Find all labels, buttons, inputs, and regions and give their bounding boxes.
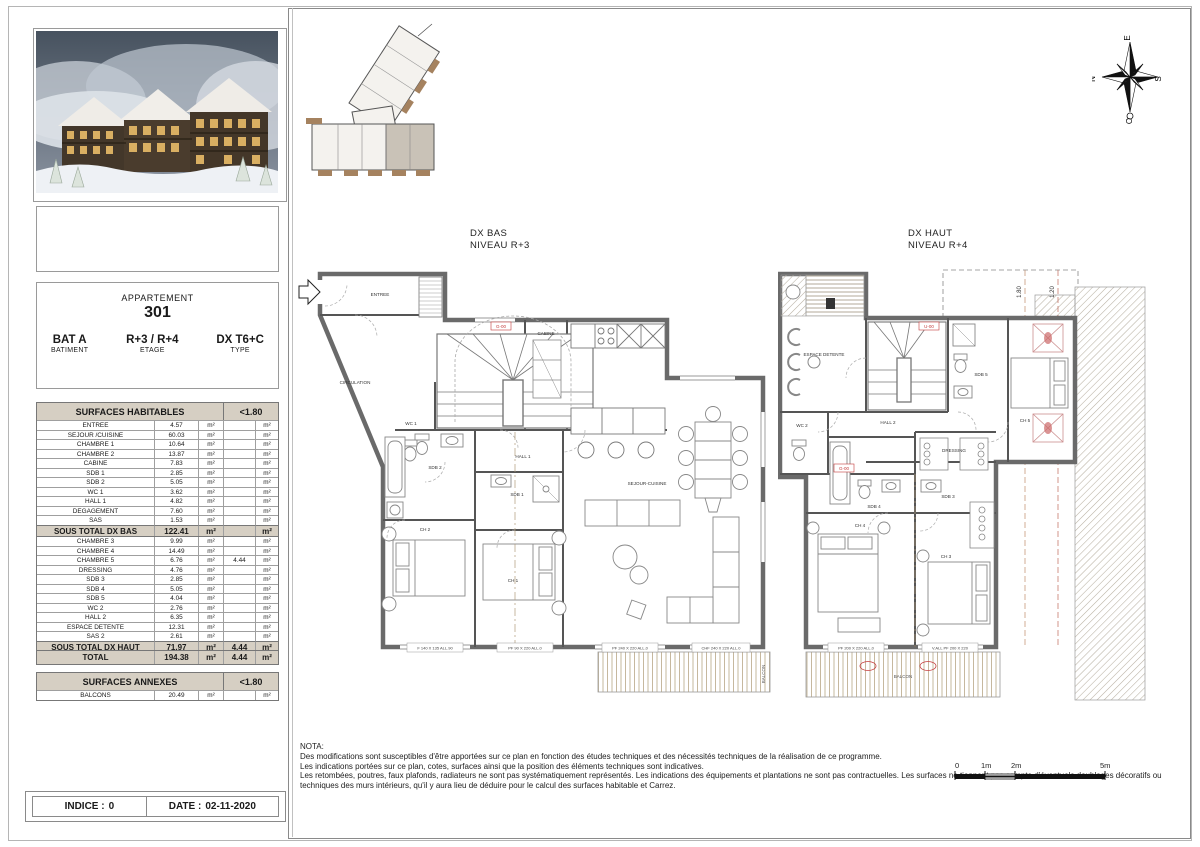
surfaces-annexes-table: SURFACES ANNEXES <1.80 BALCONS20.49m²m² <box>36 672 279 701</box>
table-cell: m² <box>198 487 223 497</box>
sdb3-fixtures <box>921 480 941 492</box>
door-tag-label: G-00 <box>839 466 850 471</box>
table-cell: 3.62 <box>154 487 198 497</box>
table-row: DRESSING4.76m²m² <box>37 565 278 575</box>
balcony-deck <box>598 652 770 692</box>
table-row: CHAMBRE 39.99m²m² <box>37 537 278 546</box>
table-cell: SAS 2 <box>37 631 154 641</box>
window-label: V.ALL PF 200 X 220 <box>932 646 969 651</box>
table-cell: m² <box>255 420 278 430</box>
table-row: SDB 32.85m²m² <box>37 574 278 584</box>
apartment-number: 301 <box>37 304 278 322</box>
table-cell: m² <box>198 574 223 584</box>
table-cell <box>223 468 255 478</box>
table-cell: m² <box>198 603 223 613</box>
table-cell: 20.49 <box>154 690 198 700</box>
table-cell: 4.76 <box>154 565 198 575</box>
cabine-bunk-bed <box>533 340 561 398</box>
building-photo <box>33 28 287 202</box>
table-cell: HALL 2 <box>37 612 154 622</box>
door-tag: G-00 <box>491 322 511 330</box>
table-cell <box>223 593 255 603</box>
total-table: TOTAL194.38m²4.44m² <box>36 650 279 665</box>
wc2-toilet-icon <box>792 440 806 461</box>
table-cell: m² <box>198 439 223 449</box>
balcony-label: BALCON <box>894 674 913 679</box>
table-cell: SDB 3 <box>37 574 154 584</box>
table-cell <box>223 612 255 622</box>
table-cell: m² <box>198 690 223 700</box>
table-cell <box>223 420 255 430</box>
table-cell: 5.05 <box>154 584 198 594</box>
table-cell: m² <box>255 612 278 622</box>
table-row: DEGAGEMENT7.60m²m² <box>37 506 278 516</box>
batiment-label: BATIMENT <box>51 347 88 354</box>
table-cell: m² <box>255 537 278 546</box>
table-cell: m² <box>198 458 223 468</box>
etage-label: ETAGE <box>126 347 178 354</box>
table-cell: SDB 1 <box>37 468 154 478</box>
compass-west-label: O <box>1125 118 1134 124</box>
etage-value: R+3 / R+4 <box>126 334 178 346</box>
scale-tick-label: 1m <box>981 761 991 770</box>
table-row: TOTAL194.38m²4.44m² <box>37 651 278 664</box>
type-col: DX T6+C TYPE <box>216 334 264 354</box>
room-label: CH 2 <box>420 527 431 532</box>
chalet-render-image <box>36 31 278 193</box>
compass-east-label: E <box>1123 35 1132 40</box>
table-cell <box>223 546 255 556</box>
table-cell <box>223 584 255 594</box>
floor-plan-bas: BALCON <box>295 262 777 707</box>
table-cell: CHAMBRE 2 <box>37 449 154 459</box>
indice-value: 0 <box>109 801 115 812</box>
table-cell: 4.04 <box>154 593 198 603</box>
door-tag-label: G-00 <box>496 324 507 329</box>
table-cell: 2.85 <box>154 468 198 478</box>
table-cell: 6.35 <box>154 612 198 622</box>
table-cell: 12.31 <box>154 622 198 632</box>
table-cell: 2.61 <box>154 631 198 641</box>
table-cell: m² <box>255 439 278 449</box>
room-label: CH 4 <box>855 523 866 528</box>
table-row: CABINE7.83m²m² <box>37 458 278 468</box>
table-cell: m² <box>198 593 223 603</box>
table-cell: BALCONS <box>37 690 154 700</box>
table-cell: ENTREE <box>37 420 154 430</box>
window-label: CHF 240 X 220 ALL.0 <box>702 646 742 651</box>
table-row: WC 13.62m²m² <box>37 487 278 497</box>
room-label: ESPACE DETENTE <box>803 352 844 357</box>
table-row: HALL 26.35m²m² <box>37 612 278 622</box>
table-cell: m² <box>198 506 223 516</box>
table-cell: m² <box>198 515 223 525</box>
table-cell <box>223 430 255 440</box>
table-cell: m² <box>198 477 223 487</box>
table-cell: m² <box>255 458 278 468</box>
room-label: WC 2 <box>796 423 808 428</box>
batiment-value: BAT A <box>51 334 88 346</box>
plan-haut-title: DX HAUTNIVEAU R+4 <box>908 228 968 252</box>
date-cell: DATE : 02-11-2020 <box>147 797 278 816</box>
table-cell: m² <box>255 593 278 603</box>
table-row: HALL 14.82m²m² <box>37 496 278 506</box>
table-row: SDB 25.05m²m² <box>37 477 278 487</box>
surfaces-annexes-header: SURFACES ANNEXES <box>37 673 223 690</box>
table-row: CHAMBRE 110.64m²m² <box>37 439 278 449</box>
table-cell: 60.03 <box>154 430 198 440</box>
indice-cell: INDICE : 0 <box>33 797 147 816</box>
table-cell: m² <box>255 477 278 487</box>
table-row: CHAMBRE 213.87m²m² <box>37 449 278 459</box>
table-cell: HALL 1 <box>37 496 154 506</box>
table-cell: m² <box>255 515 278 525</box>
height-line-label: 1.80 <box>1017 286 1023 298</box>
key-plan <box>300 20 450 195</box>
table-cell: 2.76 <box>154 603 198 613</box>
table-row: BALCONS20.49m²m² <box>37 690 278 700</box>
date-value: 02-11-2020 <box>205 801 256 812</box>
room-label: CIRCULATION <box>340 380 371 385</box>
table-cell: 14.49 <box>154 546 198 556</box>
window-label: PF 200 X 220 ALL.0 <box>838 646 875 651</box>
table-row: SDB 12.85m²m² <box>37 468 278 478</box>
room-label: SEJOUR-CUISINE <box>628 481 667 486</box>
compass-rose-icon: E S N O <box>1092 30 1168 129</box>
room-label: SDB 4 <box>867 504 881 509</box>
main-frame-inner-line <box>292 8 293 837</box>
room-label: ENTREE <box>371 292 390 297</box>
surfaces-habitables-header: SURFACES HABITABLES <box>37 403 223 420</box>
table-cell <box>223 496 255 506</box>
table-cell <box>223 515 255 525</box>
room-label: DRESSING <box>942 448 966 453</box>
compass-north-label: N <box>1092 76 1097 82</box>
table-cell: DEGAGEMENT <box>37 506 154 516</box>
table-cell: m² <box>255 546 278 556</box>
room-label: WC 1 <box>405 421 417 426</box>
window-label: PF 240 X 220 ALL.0 <box>612 646 649 651</box>
table-cell <box>223 449 255 459</box>
table-cell <box>223 439 255 449</box>
table-cell: m² <box>255 603 278 613</box>
table-cell <box>223 537 255 546</box>
table-cell: CHAMBRE 1 <box>37 439 154 449</box>
balcony-label: BALCON <box>761 665 766 684</box>
table-cell: ESPACE DETENTE <box>37 622 154 632</box>
table-cell <box>223 458 255 468</box>
room-label: SDB 2 <box>428 465 442 470</box>
table-cell: SEJOUR /CUISINE <box>37 430 154 440</box>
table-cell: m² <box>198 612 223 622</box>
room-label: SDB 1 <box>510 492 524 497</box>
date-label: DATE : <box>169 801 202 812</box>
table-cell: WC 1 <box>37 487 154 497</box>
table-cell <box>223 622 255 632</box>
table-row: SEJOUR /CUISINE60.03m²m² <box>37 430 278 440</box>
window-label: F 140 X 135 ALL.90 <box>417 646 453 651</box>
room-label: SDB 5 <box>974 372 988 377</box>
room-label: HALL 2 <box>880 420 896 425</box>
table-cell: 9.99 <box>154 537 198 546</box>
batiment-col: BAT A BATIMENT <box>51 334 88 354</box>
table-cell: m² <box>255 622 278 632</box>
table-cell: CHAMBRE 5 <box>37 555 154 565</box>
table-cell: m² <box>255 584 278 594</box>
table-cell: 6.76 <box>154 555 198 565</box>
table-cell: m² <box>198 555 223 565</box>
table-cell: m² <box>255 496 278 506</box>
room-label: CABINE <box>537 331 554 336</box>
table-cell: 13.87 <box>154 449 198 459</box>
scale-bar: 0 1m 2m 5m <box>950 758 1120 793</box>
table-cell: SAS <box>37 515 154 525</box>
table-cell: m² <box>198 420 223 430</box>
table-cell <box>223 506 255 516</box>
revision-box: INDICE : 0 DATE : 02-11-2020 <box>25 791 286 822</box>
annexes-lt180-header: <1.80 <box>223 673 278 690</box>
room-label: CH 5 <box>1020 418 1031 423</box>
table-cell: CHAMBRE 4 <box>37 546 154 556</box>
entry-closet <box>419 277 442 317</box>
table-cell: 2.85 <box>154 574 198 584</box>
table-cell: m² <box>198 565 223 575</box>
compass-south-label: S <box>1154 76 1163 81</box>
etage-col: R+3 / R+4 ETAGE <box>126 334 178 354</box>
table-cell: m² <box>198 622 223 632</box>
room-label: SDB 3 <box>941 494 955 499</box>
plan-bas-title: DX BASNIVEAU R+3 <box>470 228 530 252</box>
table-cell: 10.64 <box>154 439 198 449</box>
table-cell <box>223 574 255 584</box>
table-row: SDB 54.04m²m² <box>37 593 278 603</box>
window-label: PF 90 X 220 ALL.0 <box>508 646 542 651</box>
table-cell: SDB 4 <box>37 584 154 594</box>
table-cell: 1.53 <box>154 515 198 525</box>
table-row: CHAMBRE 414.49m²m² <box>37 546 278 556</box>
table-cell: CABINE <box>37 458 154 468</box>
table-cell: m² <box>198 496 223 506</box>
nota-title: NOTA: <box>300 742 1172 752</box>
table-cell: 4.44 <box>223 651 255 664</box>
table-row: ENTREE4.57m²m² <box>37 420 278 430</box>
door-tag-label: U-00 <box>924 324 934 329</box>
table-cell: m² <box>255 690 278 700</box>
table-cell: m² <box>255 565 278 575</box>
table-cell <box>223 690 255 700</box>
scale-tick-label: 0 <box>955 761 959 770</box>
lt180-header: <1.80 <box>223 403 278 420</box>
table-row: ESPACE DETENTE12.31m²m² <box>37 622 278 632</box>
table-row: SDB 45.05m²m² <box>37 584 278 594</box>
table-cell: m² <box>198 631 223 641</box>
table-cell: WC 2 <box>37 603 154 613</box>
table-cell <box>223 603 255 613</box>
floor-plan-haut: 1.80 1.20 BALCON <box>778 262 1150 707</box>
table-cell: m² <box>198 537 223 546</box>
table-cell: DRESSING <box>37 565 154 575</box>
type-value: DX T6+C <box>216 334 264 346</box>
apartment-info-box: APPARTEMENT 301 BAT A BATIMENT R+3 / R+4… <box>36 282 279 389</box>
table-row: CHAMBRE 56.76m²4.44m² <box>37 555 278 565</box>
table-cell: m² <box>198 430 223 440</box>
height-line-label: 1.20 <box>1050 286 1056 298</box>
staircase <box>868 322 946 410</box>
table-cell: m² <box>255 487 278 497</box>
surfaces-habitables-table: SURFACES HABITABLES <1.80 ENTREE4.57m²m²… <box>36 402 279 540</box>
table-cell: 7.60 <box>154 506 198 516</box>
table-cell: m² <box>255 506 278 516</box>
table-cell: m² <box>198 468 223 478</box>
table-cell: 5.05 <box>154 477 198 487</box>
table-cell: m² <box>255 468 278 478</box>
table-cell: m² <box>255 555 278 565</box>
table-cell: m² <box>198 449 223 459</box>
plan-sheet: APPARTEMENT 301 BAT A BATIMENT R+3 / R+4… <box>0 0 1200 847</box>
table-cell: 4.44 <box>223 555 255 565</box>
table-cell <box>223 565 255 575</box>
indice-label: INDICE : <box>65 801 105 812</box>
table-cell <box>223 477 255 487</box>
ch3-bed <box>917 550 990 636</box>
table-row: WC 22.76m²m² <box>37 603 278 613</box>
table-cell: 194.38 <box>154 651 198 664</box>
table-cell <box>223 631 255 641</box>
table-row: SAS 22.61m²m² <box>37 631 278 641</box>
scale-tick-label: 5m <box>1100 761 1110 770</box>
logo-placeholder-box <box>36 206 279 272</box>
table-cell: TOTAL <box>37 651 154 664</box>
table-row: SAS1.53m²m² <box>37 515 278 525</box>
type-label: TYPE <box>216 347 264 354</box>
table-cell: SDB 5 <box>37 593 154 603</box>
table-cell: m² <box>198 651 223 664</box>
room-label: CH 3 <box>941 554 952 559</box>
table-cell <box>223 487 255 497</box>
table-cell: 4.57 <box>154 420 198 430</box>
table-cell: m² <box>255 631 278 641</box>
terrace-deck <box>781 275 864 316</box>
table-cell: m² <box>198 546 223 556</box>
table-cell: m² <box>255 430 278 440</box>
apartment-label: APPARTEMENT <box>37 293 278 303</box>
room-label: HALL 1 <box>515 454 531 459</box>
table-cell: m² <box>255 574 278 584</box>
bench <box>838 618 880 632</box>
ch5-bed <box>1011 358 1068 408</box>
scale-tick-label: 2m <box>1011 761 1021 770</box>
surfaces-haut-table: CHAMBRE 39.99m²m²CHAMBRE 414.49m²m²CHAMB… <box>36 536 279 656</box>
table-cell: m² <box>198 584 223 594</box>
table-cell: 7.83 <box>154 458 198 468</box>
room-label: CH 1 <box>508 578 519 583</box>
table-cell: m² <box>255 651 278 664</box>
table-cell: m² <box>255 449 278 459</box>
table-cell: CHAMBRE 3 <box>37 537 154 546</box>
table-cell: 4.82 <box>154 496 198 506</box>
table-cell: SDB 2 <box>37 477 154 487</box>
